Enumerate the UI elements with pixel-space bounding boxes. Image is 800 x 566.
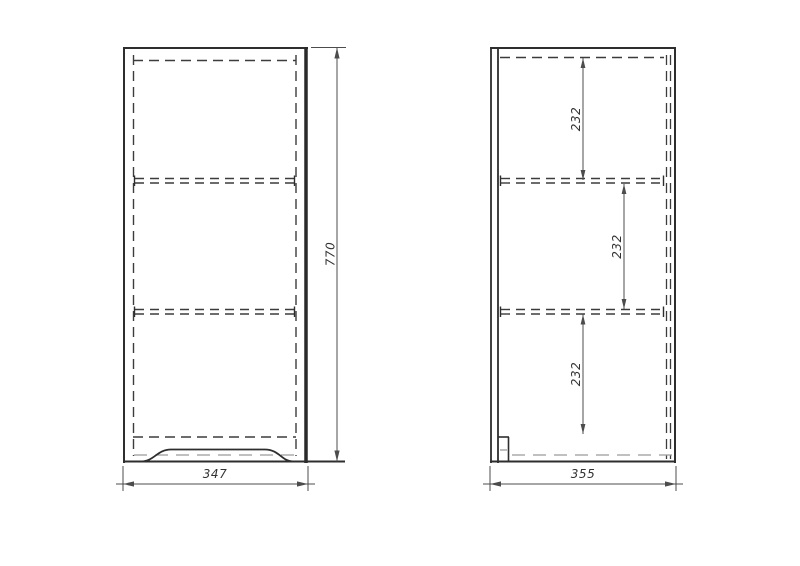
technical-drawing-canvas: 347 770 <box>0 0 800 566</box>
dimension-label-front-width: 347 <box>203 467 227 481</box>
dimension-section-middle: 232 <box>610 184 626 309</box>
arrow-right-icon <box>297 481 308 486</box>
arrow-down-icon <box>334 451 339 462</box>
arrow-up-icon <box>622 184 627 194</box>
arrow-right-icon <box>665 481 676 486</box>
dimension-label-section-bottom: 232 <box>569 362 583 386</box>
dimension-side-depth: 355 <box>483 466 683 491</box>
arrow-up-icon <box>581 58 586 68</box>
front-view <box>123 47 345 463</box>
front-shelf-2-hidden-line <box>135 307 295 318</box>
side-shelf-2-hidden-line <box>501 307 664 318</box>
dimension-front-height: 770 <box>311 48 346 462</box>
side-back-panel-hidden-line <box>667 55 671 459</box>
dimension-label-section-top: 232 <box>569 107 583 131</box>
dimension-section-bottom: 232 <box>569 315 585 435</box>
arrow-up-icon <box>581 315 586 325</box>
dimension-section-top: 232 <box>569 58 585 180</box>
dimension-label-section-middle: 232 <box>610 234 624 258</box>
dimension-front-width: 347 <box>116 466 315 491</box>
front-shelf-1-hidden-line <box>135 176 295 187</box>
arrow-down-icon <box>581 424 586 434</box>
side-handle-profile <box>498 437 509 462</box>
arrow-down-icon <box>622 299 627 309</box>
arrow-left-icon <box>123 481 134 486</box>
arrow-left-icon <box>490 481 501 486</box>
dimension-label-side-depth: 355 <box>571 467 595 481</box>
dimension-label-front-height: 770 <box>324 242 338 266</box>
drawing-sheet: 347 770 <box>0 0 800 566</box>
side-shelf-1-hidden-line <box>501 176 664 187</box>
arrow-up-icon <box>334 48 339 59</box>
